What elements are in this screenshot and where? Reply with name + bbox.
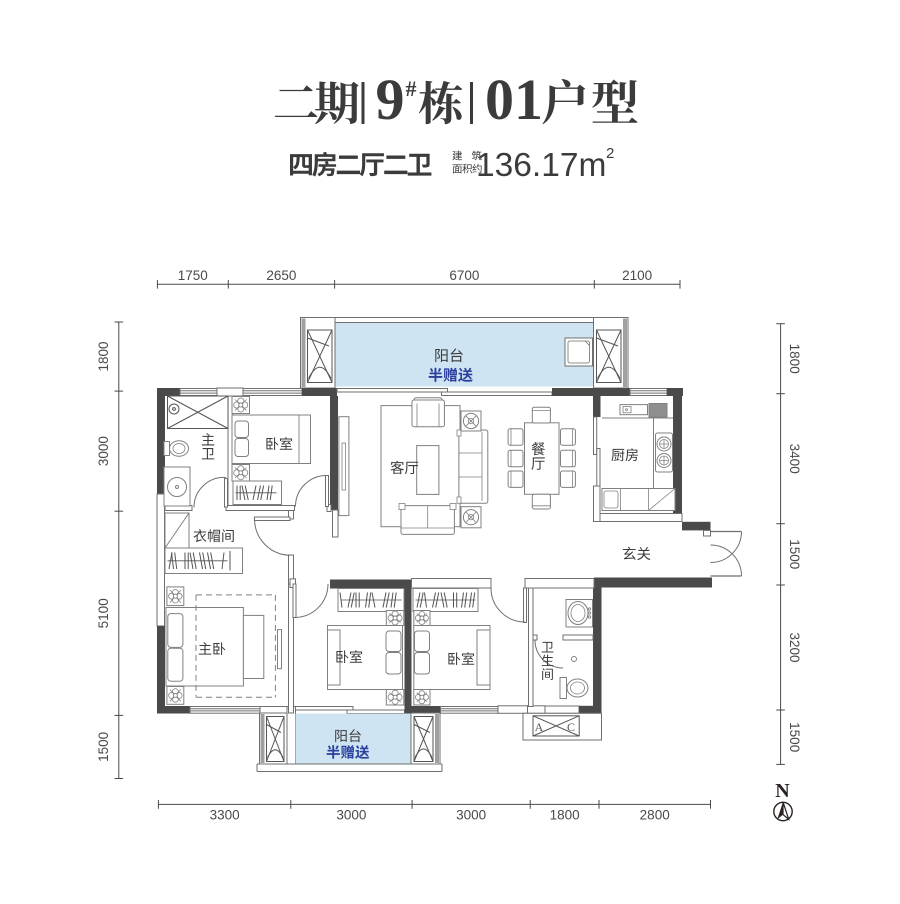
svg-text:#: #: [406, 76, 417, 101]
svg-text:6700: 6700: [449, 268, 479, 283]
svg-text:9: 9: [376, 67, 405, 132]
svg-text:1500: 1500: [787, 722, 802, 752]
svg-text:136.17m: 136.17m: [476, 147, 606, 184]
svg-text:3000: 3000: [336, 808, 366, 823]
svg-text:N: N: [775, 780, 790, 802]
svg-text:1750: 1750: [178, 268, 208, 283]
svg-text:1800: 1800: [787, 344, 802, 374]
svg-text:2650: 2650: [266, 268, 296, 283]
svg-text:2800: 2800: [640, 808, 670, 823]
svg-text:1800: 1800: [550, 808, 580, 823]
svg-text:3300: 3300: [210, 808, 240, 823]
svg-text:C: C: [567, 720, 575, 734]
svg-text:01: 01: [485, 67, 543, 132]
svg-text:2: 2: [606, 145, 614, 162]
svg-text:A: A: [535, 720, 544, 734]
svg-text:1500: 1500: [787, 539, 802, 569]
svg-text:3400: 3400: [787, 444, 802, 474]
svg-text:1800: 1800: [96, 341, 111, 371]
svg-text:2100: 2100: [622, 268, 652, 283]
svg-text:5100: 5100: [96, 598, 111, 628]
svg-text:3000: 3000: [96, 436, 111, 466]
svg-text:3000: 3000: [456, 808, 486, 823]
svg-text:1500: 1500: [96, 732, 111, 762]
svg-text:3200: 3200: [787, 632, 802, 662]
